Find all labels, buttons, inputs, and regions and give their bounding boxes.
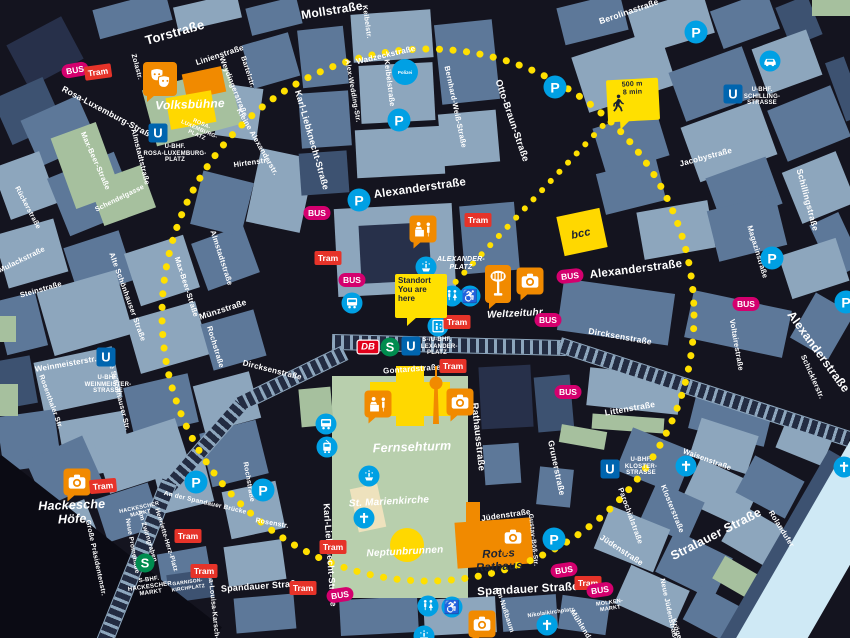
parking-icon: P (685, 21, 708, 44)
bus-badge: BUS (586, 581, 615, 599)
street-label: Zolastr. (129, 53, 143, 81)
landmark-label: Fernsehturm (372, 439, 451, 456)
tram-badge: Tram (175, 529, 202, 543)
pedestrian-icon (609, 93, 628, 112)
camera-icon (500, 524, 527, 551)
building-block (636, 200, 715, 260)
area-label: ALEXANDER- PLATZ (437, 256, 485, 272)
u-bahn-icon: U (97, 348, 116, 367)
bus-badge: BUS (733, 297, 760, 311)
building-block (190, 171, 254, 237)
church-icon (834, 457, 850, 478)
building-block (0, 384, 18, 416)
building-block (297, 26, 349, 88)
camera-icon (469, 611, 496, 638)
building-block (0, 598, 90, 638)
station-label: U-BHF. ROSA-LUXEMBURG- PLATZ (144, 144, 207, 164)
building-block (355, 126, 445, 179)
world-clock-icon (485, 265, 511, 303)
theater-icon (143, 62, 177, 96)
police-icon: Polizei (392, 59, 418, 85)
parking-icon: P (543, 528, 566, 551)
building-block (478, 365, 533, 430)
info-icon (365, 391, 392, 418)
walking-distance-marker: 500 m8 min (606, 78, 660, 123)
building-block (466, 502, 480, 526)
station-label: S-/U-BHF. ALEXANDER- PLATZ (416, 337, 457, 357)
city-map-alexanderplatz: TorstraßeMollstraßeLinienstraßeWeydinger… (0, 0, 850, 638)
bus-badge: BUS (304, 206, 331, 220)
building-block (245, 0, 302, 36)
u-bahn-icon: U (149, 124, 168, 143)
parking-icon: P (544, 76, 567, 99)
accessible-icon: ♿ (442, 597, 463, 618)
fountain-icon (359, 466, 380, 487)
parking-garage-icon: P (348, 189, 371, 212)
station-label: U-BHF. SCHILLING- STRASSE (744, 87, 780, 107)
building-block (483, 443, 522, 485)
station-label: U-BHF. KLOSTER- STRASSE (625, 457, 657, 477)
parking-icon: P (252, 479, 275, 502)
station-label: U-BHF. WEINMEISTER- STRASSE (85, 375, 132, 395)
tram-badge: Tram (465, 213, 492, 227)
parking-icon: P (835, 291, 850, 314)
landmark-shape (396, 385, 424, 413)
info-icon (410, 216, 437, 243)
db-badge: DB (357, 340, 380, 355)
tram-badge: Tram (84, 63, 113, 81)
tram-badge: Tram (191, 564, 218, 578)
landmark-label: Volksbühne (155, 97, 225, 113)
parking-icon: P (761, 247, 784, 270)
s-bahn-icon: S (381, 338, 400, 357)
building-block (556, 0, 628, 45)
tv-tower-icon (428, 366, 444, 426)
bus-badge: BUS (555, 385, 582, 399)
camera-icon (64, 469, 91, 496)
street-label: Alexanderstraße (589, 258, 683, 282)
tram-badge: Tram (444, 315, 471, 329)
bus-stop-icon (342, 293, 363, 314)
tram-stop-icon (317, 437, 338, 458)
building-block (812, 0, 850, 16)
landmark-label: Rotes Rathaus (475, 547, 523, 575)
u-bahn-icon: U (601, 460, 620, 479)
bus-badge: BUS (339, 273, 366, 287)
camera-icon (447, 389, 474, 416)
parking-icon: P (388, 109, 411, 132)
building-block (779, 238, 850, 299)
building-block (434, 19, 500, 105)
tram-badge: Tram (290, 581, 317, 595)
u-bahn-icon: U (402, 337, 421, 356)
church-icon (354, 508, 375, 529)
area-label: MOLKEN- MARKT (596, 598, 625, 614)
tram-badge: Tram (320, 540, 347, 554)
building-block (0, 316, 16, 342)
building-block (234, 593, 297, 633)
bus-badge: BUS (535, 313, 562, 327)
accessible-icon: ♿ (460, 286, 481, 307)
wc-icon (418, 596, 439, 617)
church-icon (537, 615, 558, 636)
tram-badge: Tram (315, 251, 342, 265)
building-block (339, 596, 419, 636)
taxi-icon (760, 51, 781, 72)
s-bahn-icon: S (136, 554, 155, 573)
building-block (438, 110, 500, 167)
bus-stop-icon (316, 414, 337, 435)
building-block (534, 375, 575, 433)
you-are-here-callout: Standort You are here (395, 274, 447, 318)
camera-icon (517, 268, 544, 295)
church-icon (676, 456, 697, 477)
u-bahn-icon: U (724, 85, 743, 104)
street-label: Alexanderstraße (373, 176, 467, 202)
tram-badge: Tram (89, 478, 117, 494)
tram-badge: Tram (440, 359, 467, 373)
parking-icon: P (185, 471, 208, 494)
